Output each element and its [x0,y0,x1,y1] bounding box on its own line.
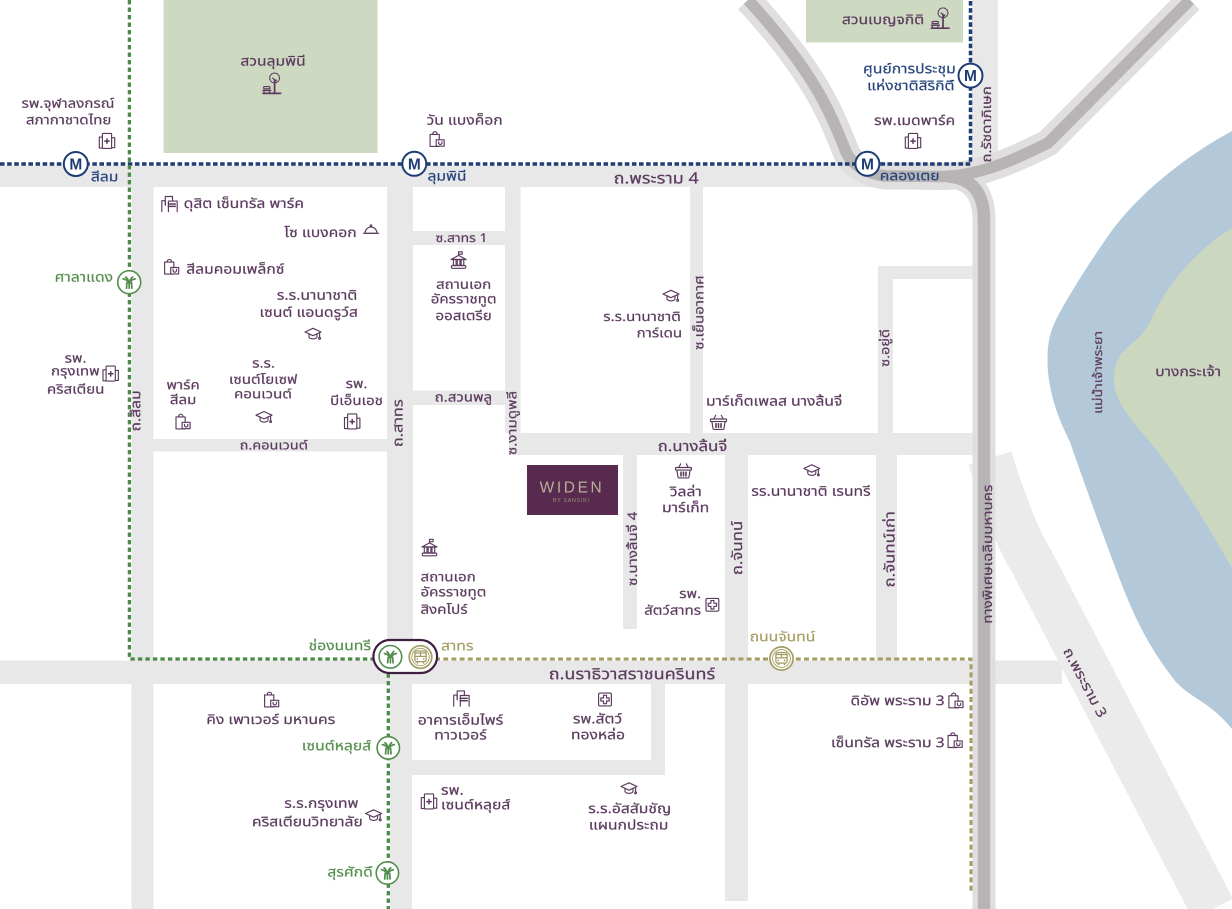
svg-text:M: M [69,157,82,174]
svg-text:WIDEN: WIDEN [540,480,605,497]
svg-text:M: M [861,156,874,173]
svg-text:M: M [964,68,977,85]
svg-text:M: M [408,156,421,173]
svg-text:BY SANSIRI: BY SANSIRI [553,498,590,504]
